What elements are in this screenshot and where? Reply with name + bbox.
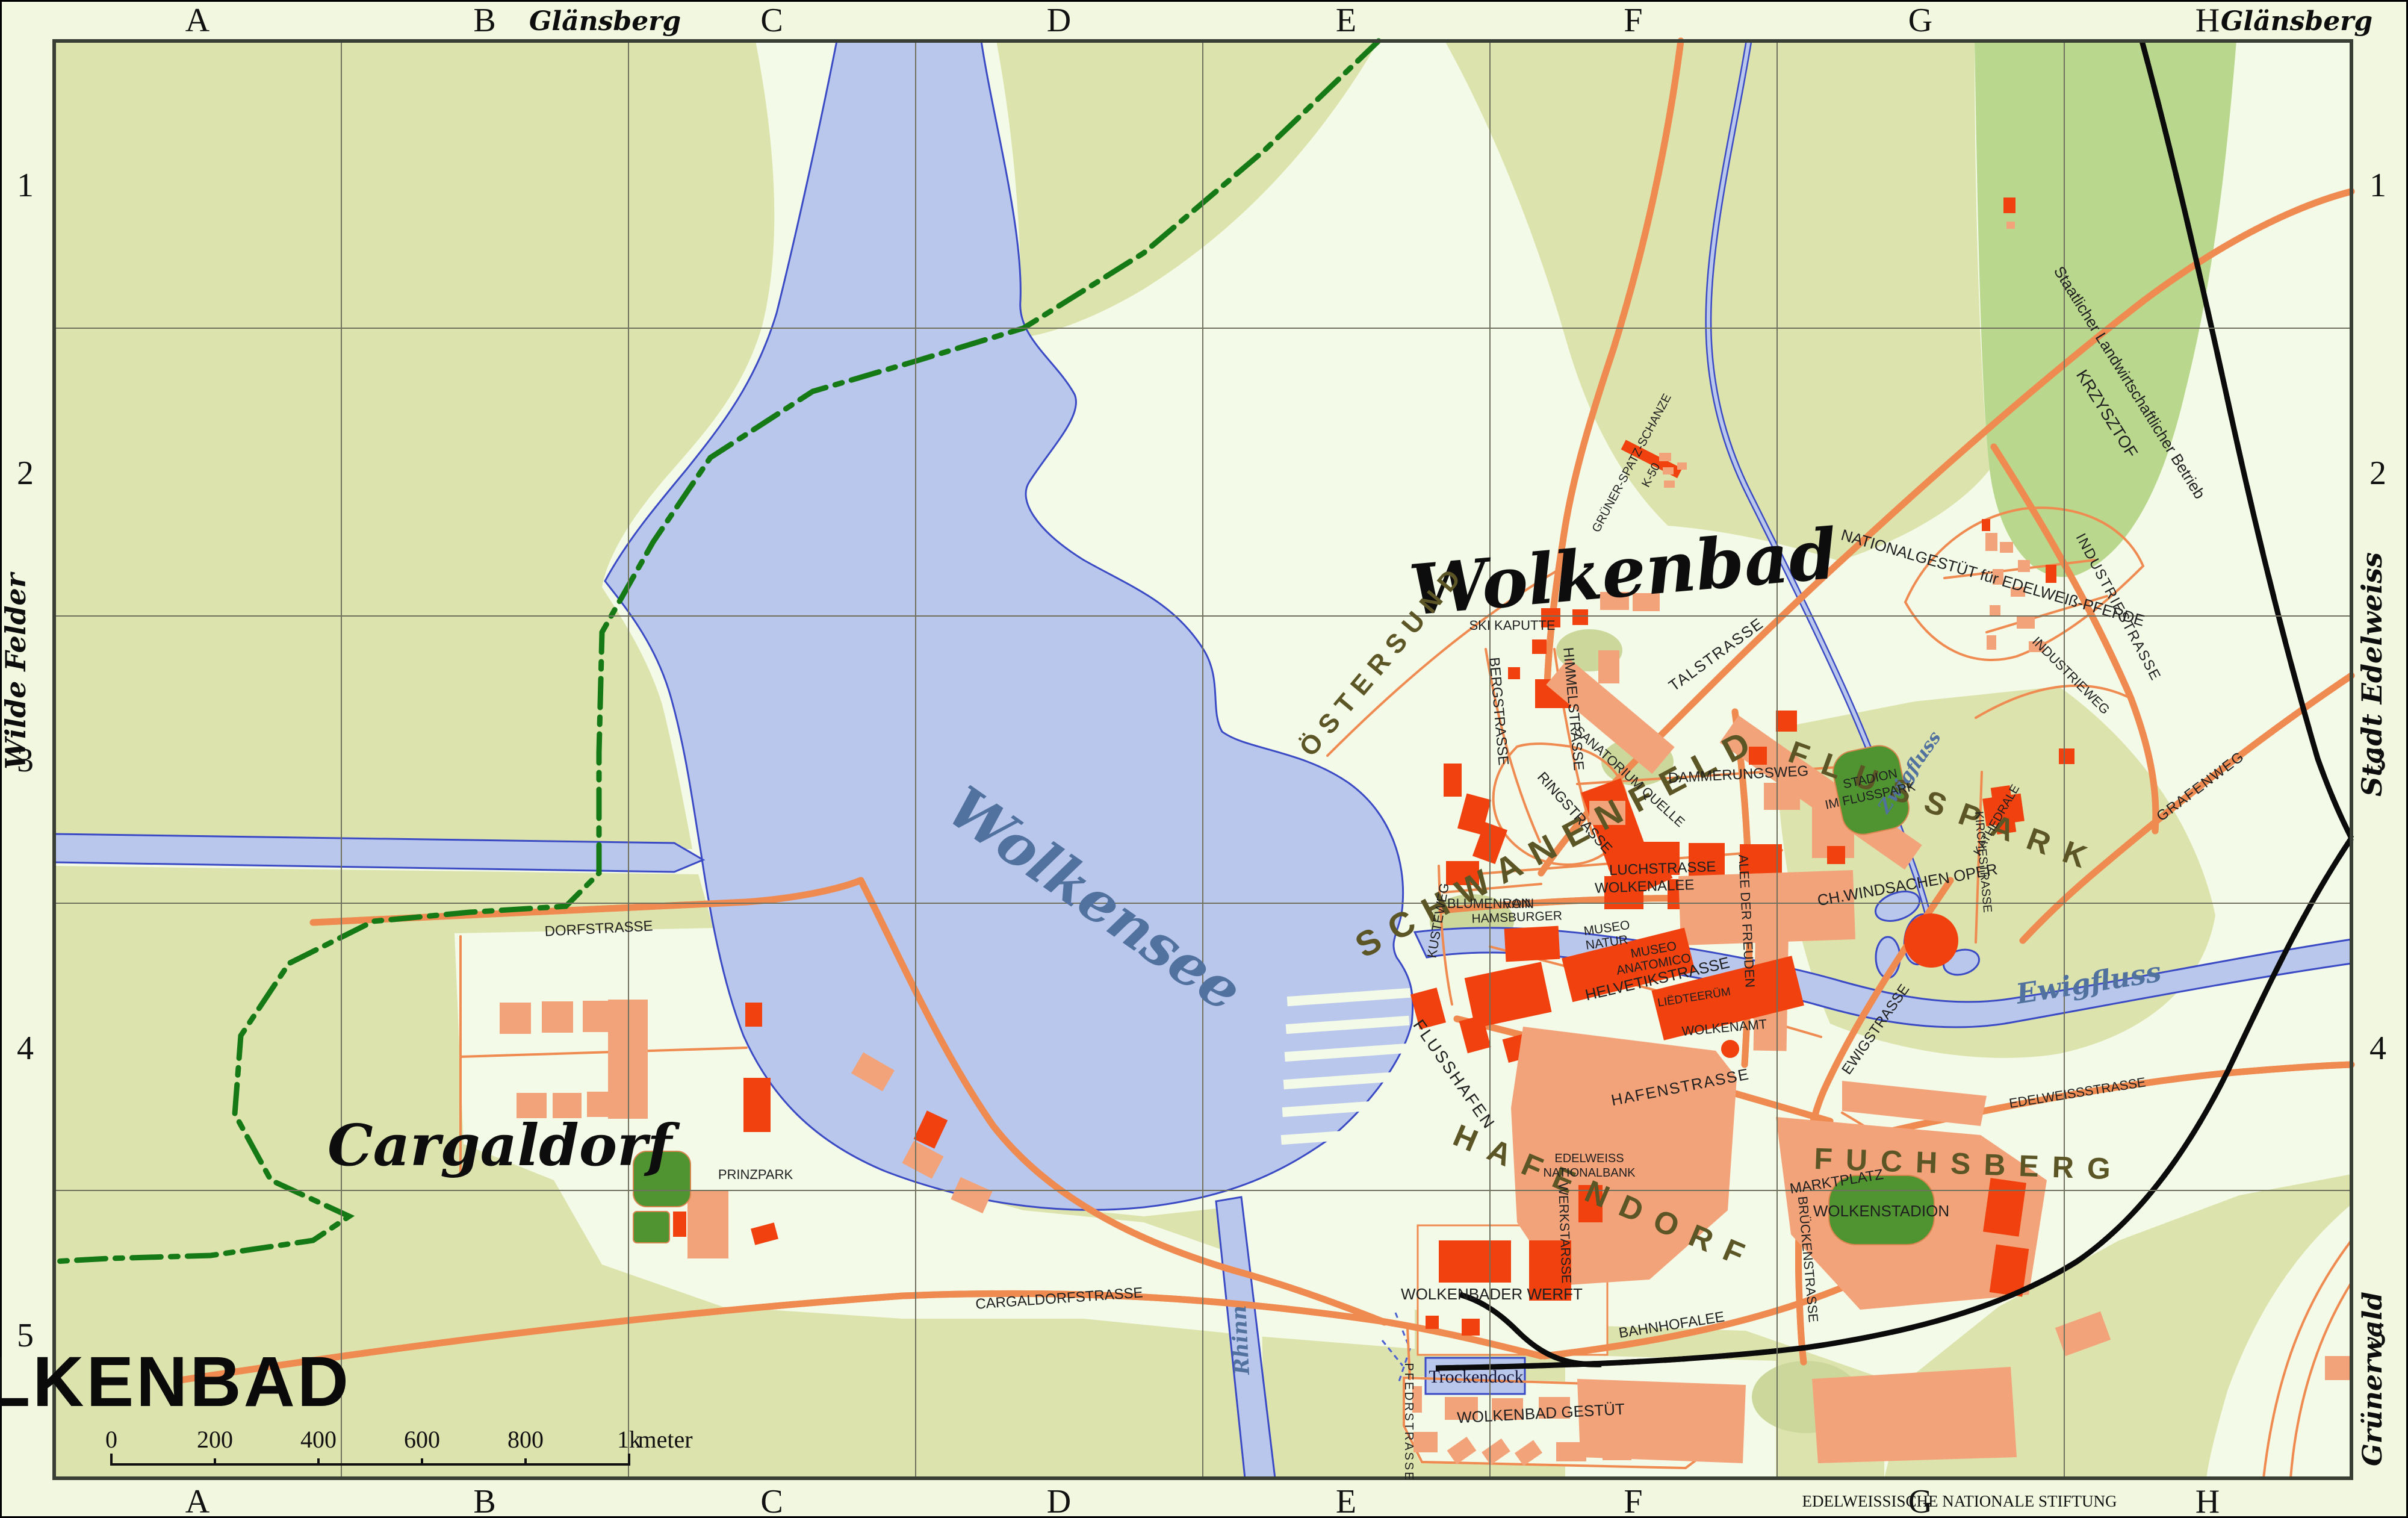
- grid-letter-bottom-D: D: [1047, 1483, 1071, 1518]
- poi-nationalbank-2: NATIONALBANK: [1544, 1166, 1636, 1180]
- map-page: Wolkenbad Wolkensee Cargaldorf ÖSTERSUND…: [0, 0, 2408, 1518]
- grid-number-right-3: 3: [2369, 742, 2386, 779]
- grid-letter-bottom-A: A: [185, 1483, 210, 1518]
- grid-number-right-5: 5: [2369, 1317, 2386, 1354]
- wolkenamt-building: [1721, 1040, 1739, 1058]
- poi-werft: WOLKENBADER WERFT: [1401, 1285, 1583, 1303]
- grid-letter-bottom-F: F: [1624, 1483, 1642, 1518]
- grid-letter-bottom-G: G: [1908, 1483, 1932, 1518]
- grid-letter-top-B: B: [473, 2, 495, 39]
- street-blumenrain: BLUMENRAIN: [1447, 896, 1534, 911]
- grid-letters-bottom: ABCDEFGH: [185, 1483, 2220, 1518]
- grid-letter-top-E: E: [1336, 2, 1356, 39]
- grid-number-left-3: 3: [17, 742, 34, 779]
- grid-letters-top: ABCDEFGH: [185, 2, 2220, 39]
- scale-tick-400: 400: [300, 1426, 337, 1453]
- grid-number-left-4: 4: [17, 1030, 34, 1067]
- grid-letter-top-A: A: [185, 2, 210, 39]
- grid-letter-top-G: G: [1908, 2, 1932, 39]
- grid-numbers-right: 12345: [2369, 167, 2386, 1354]
- poi-trockendock: Trockendock: [1429, 1367, 1523, 1387]
- poi-ski-kaputte: SKI KAPUTTE: [1469, 618, 1555, 633]
- wolkenbad-city-map: Wolkenbad Wolkensee Cargaldorf ÖSTERSUND…: [0, 0, 2408, 1518]
- grid-number-left-1: 1: [17, 167, 34, 204]
- scale-tick-200: 200: [197, 1426, 233, 1453]
- grid-numbers-left: 12345: [17, 167, 34, 1354]
- edge-label-glaensberg-topright: Glänsberg: [2221, 6, 2372, 37]
- grid-number-right-1: 1: [2369, 167, 2386, 204]
- attribution: EDELWEISSISCHE NATIONALE STIFTUNG: [1802, 1492, 2117, 1510]
- scale-tick-0: 0: [105, 1426, 117, 1453]
- grid-letter-bottom-C: C: [760, 1483, 783, 1518]
- poi-wolkenstadion: WOLKENSTADION: [1813, 1202, 1949, 1220]
- grid-letter-top-D: D: [1047, 2, 1071, 39]
- scale-tick-600: 600: [404, 1426, 440, 1453]
- poi-prinzpark: PRINZPARK: [718, 1167, 793, 1182]
- village-name: Cargaldorf: [327, 1112, 680, 1179]
- scale-tick-800: 800: [507, 1426, 544, 1453]
- grid-number-left-2: 2: [17, 455, 34, 492]
- grid-number-right-2: 2: [2369, 455, 2386, 492]
- grid-letter-top-C: C: [760, 2, 783, 39]
- grid-letter-top-F: F: [1624, 2, 1642, 39]
- street-pfedrstrasse: PFEDRSTRASSE: [1402, 1363, 1415, 1481]
- opera-building: [1904, 913, 1958, 968]
- street-wolkenalee: WOLKENALEE: [1595, 877, 1695, 897]
- edge-label-wilde-felder: Wilde Felder: [0, 571, 32, 770]
- river-label-rhinn: Rhinn: [1227, 1305, 1255, 1376]
- grid-number-right-4: 4: [2369, 1030, 2386, 1067]
- grid-letter-bottom-B: B: [473, 1483, 495, 1518]
- grid-letter-bottom-E: E: [1336, 1483, 1356, 1518]
- poi-nationalbank-1: EDELWEISS: [1554, 1152, 1624, 1165]
- grid-letter-bottom-H: H: [2195, 1483, 2220, 1518]
- map-title: WOLKENBAD: [0, 1342, 351, 1422]
- edge-label-glaensberg-top: Glänsberg: [529, 6, 681, 37]
- grid-letter-top-H: H: [2195, 2, 2220, 39]
- scale-unit: meter: [638, 1426, 692, 1453]
